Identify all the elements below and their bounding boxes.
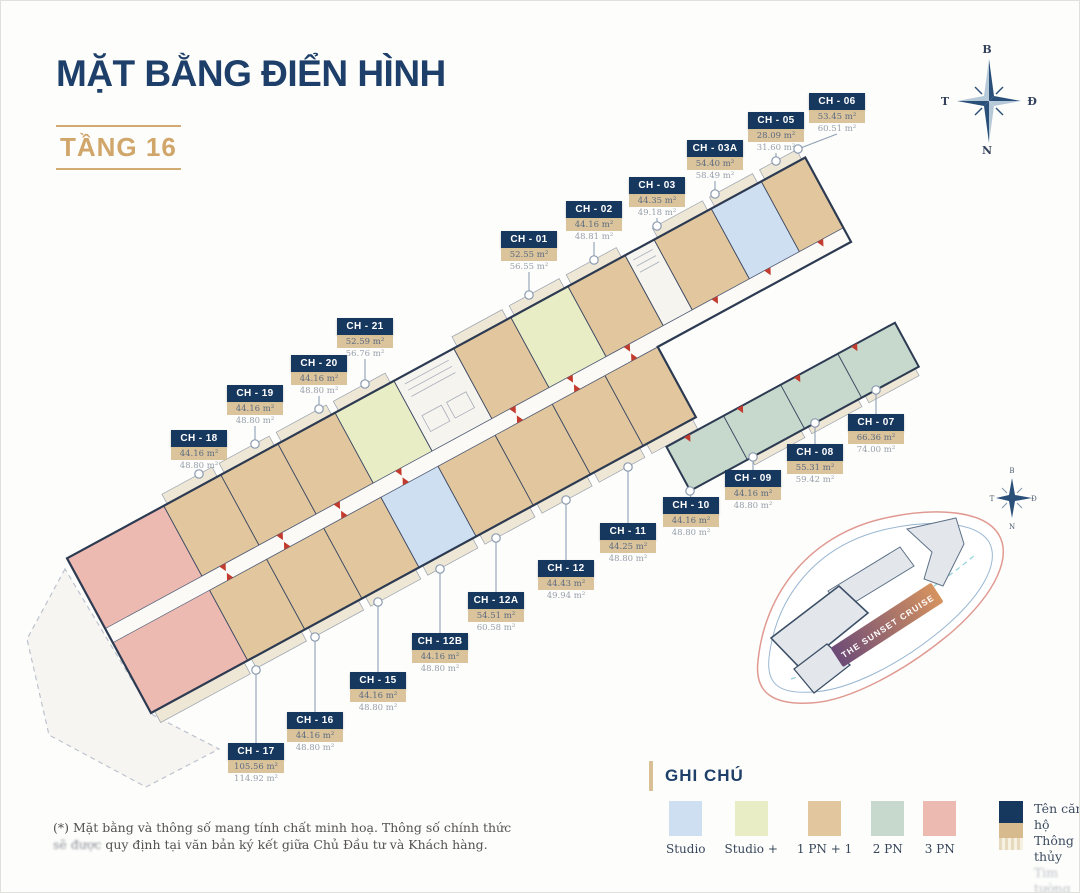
unit-area-gross: 56.76 m²	[337, 348, 393, 359]
legend-swatch-pn2	[871, 801, 904, 836]
legend-label-pn3: 3 PN	[925, 842, 955, 856]
unit-label-ch-12a: CH - 12A54.51 m²60.58 m²	[468, 592, 524, 633]
legend-swatch-studio_plus	[735, 801, 768, 836]
unit-area-net: 44.16 m²	[663, 514, 719, 527]
unit-area-net: 52.55 m²	[501, 248, 557, 261]
unit-code: CH - 12	[538, 560, 594, 577]
legend-item-pn3: 3 PN	[923, 801, 956, 856]
unit-area-net: 54.40 m²	[687, 157, 743, 170]
unit-area-gross: 48.80 m²	[725, 500, 781, 511]
unit-area-gross: 48.80 m²	[663, 527, 719, 538]
unit-code: CH - 03	[629, 177, 685, 194]
unit-label-ch-12: CH - 1244.43 m²49.94 m²	[538, 560, 594, 601]
legend-unit-name-swatch	[999, 801, 1023, 823]
unit-label-ch-06: CH - 0653.45 m²60.51 m²	[809, 93, 865, 134]
unit-code: CH - 07	[848, 414, 904, 431]
title-block: MẶT BẰNG ĐIỂN HÌNH TẦNG 16	[56, 53, 446, 170]
unit-area-net: 28.09 m²	[748, 129, 804, 142]
unit-code: CH - 17	[228, 743, 284, 760]
unit-label-ch-20: CH - 2044.16 m²48.80 m²	[291, 355, 347, 396]
unit-code: CH - 19	[227, 385, 283, 402]
unit-code: CH - 08	[787, 444, 843, 461]
unit-area-gross: 49.94 m²	[538, 590, 594, 601]
unit-code: CH - 02	[566, 201, 622, 218]
unit-label-ch-10: CH - 1044.16 m²48.80 m²	[663, 497, 719, 538]
unit-area-gross: 31.60 m²	[748, 142, 804, 153]
unit-area-gross: 48.80 m²	[227, 415, 283, 426]
unit-area-gross: 48.80 m²	[412, 663, 468, 674]
unit-label-ch-09: CH - 0944.16 m²48.80 m²	[725, 470, 781, 511]
legend-label-studio_plus: Studio +	[725, 842, 778, 856]
page-title: MẶT BẰNG ĐIỂN HÌNH	[56, 53, 446, 95]
unit-area-net: 44.16 m²	[350, 689, 406, 702]
unit-label-ch-19: CH - 1944.16 m²48.80 m²	[227, 385, 283, 426]
unit-label-ch-03: CH - 0344.35 m²49.18 m²	[629, 177, 685, 218]
unit-area-gross: 60.58 m²	[468, 622, 524, 633]
legend-label-pn2: 2 PN	[873, 842, 903, 856]
unit-area-net: 105.56 m²	[228, 760, 284, 773]
unit-area-gross: 74.00 m²	[848, 444, 904, 455]
unit-code: CH - 12B	[412, 633, 468, 650]
unit-area-net: 54.51 m²	[468, 609, 524, 622]
unit-area-gross: 48.80 m²	[600, 553, 656, 564]
unit-area-gross: 48.80 m²	[350, 702, 406, 713]
unit-area-gross: 48.80 m²	[287, 742, 343, 753]
unit-label-ch-15: CH - 1544.16 m²48.80 m²	[350, 672, 406, 713]
unit-area-gross: 48.80 m²	[171, 460, 227, 471]
unit-label-ch-05: CH - 0528.09 m²31.60 m²	[748, 112, 804, 153]
legend-label-pn1: 1 PN + 1	[797, 842, 852, 856]
legend-net-area-label: Thông thủy	[1034, 833, 1080, 865]
legend-accent-bar	[649, 761, 653, 791]
unit-code: CH - 15	[350, 672, 406, 689]
unit-code: CH - 05	[748, 112, 804, 129]
unit-label-ch-08: CH - 0855.31 m²59.42 m²	[787, 444, 843, 485]
unit-label-ch-07: CH - 0766.36 m²74.00 m²	[848, 414, 904, 455]
legend-swatch-studio	[669, 801, 702, 836]
legend-gross-area-label: Tim tường	[1034, 865, 1080, 893]
unit-area-net: 44.16 m²	[412, 650, 468, 663]
unit-area-net: 55.31 m²	[787, 461, 843, 474]
unit-label-ch-03a: CH - 03A54.40 m²58.49 m²	[687, 140, 743, 181]
disclaimer-line-1: (*) Mặt bằng và thông số mang tính chất …	[53, 819, 511, 836]
unit-area-net: 52.59 m²	[337, 335, 393, 348]
legend-net-area-swatch	[999, 823, 1023, 838]
unit-area-gross: 114.92 m²	[228, 773, 284, 784]
unit-code: CH - 06	[809, 93, 865, 110]
unit-area-net: 44.16 m²	[287, 729, 343, 742]
legend-unit-name-label: Tên căn hộ	[1034, 801, 1080, 833]
disclaimer-line-2: sẽ được quy định tại văn bản ký kết giữa…	[53, 836, 511, 853]
unit-area-net: 44.16 m²	[227, 402, 283, 415]
unit-label-ch-12b: CH - 12B44.16 m²48.80 m²	[412, 633, 468, 674]
legend-item-studio: Studio	[666, 801, 706, 856]
unit-code: CH - 03A	[687, 140, 743, 157]
unit-area-net: 66.36 m²	[848, 431, 904, 444]
unit-area-net: 53.45 m²	[809, 110, 865, 123]
legend-swatch-pn3	[923, 801, 956, 836]
unit-code: CH - 11	[600, 523, 656, 540]
unit-area-net: 44.16 m²	[566, 218, 622, 231]
legend-heading: GHI CHÚ	[665, 766, 744, 786]
unit-area-gross: 48.81 m²	[566, 231, 622, 242]
unit-area-gross: 48.80 m²	[291, 385, 347, 396]
unit-area-net: 44.16 m²	[725, 487, 781, 500]
legend-item-pn2: 2 PN	[871, 801, 904, 856]
legend-name-box: Tên căn hộ Thông thủy Tim tường	[999, 801, 1080, 893]
unit-area-gross: 56.55 m²	[501, 261, 557, 272]
unit-area-net: 44.43 m²	[538, 577, 594, 590]
legend: GHI CHÚ StudioStudio +1 PN + 12 PN3 PN T…	[649, 761, 1080, 893]
legend-swatch-pn1	[808, 801, 841, 836]
unit-label-ch-18: CH - 1844.16 m²48.80 m²	[171, 430, 227, 471]
floor-label: TẦNG 16	[56, 125, 181, 170]
unit-area-gross: 59.42 m²	[787, 474, 843, 485]
unit-code: CH - 09	[725, 470, 781, 487]
unit-area-gross: 49.18 m²	[629, 207, 685, 218]
unit-label-ch-17: CH - 17105.56 m²114.92 m²	[228, 743, 284, 784]
unit-code: CH - 12A	[468, 592, 524, 609]
unit-area-net: 44.16 m²	[171, 447, 227, 460]
legend-item-studio_plus: Studio +	[725, 801, 778, 856]
disclaimer-note: (*) Mặt bằng và thông số mang tính chất …	[53, 819, 511, 853]
unit-area-net: 44.16 m²	[291, 372, 347, 385]
unit-label-ch-02: CH - 0244.16 m²48.81 m²	[566, 201, 622, 242]
legend-gross-area-swatch	[999, 838, 1023, 850]
unit-code: CH - 10	[663, 497, 719, 514]
unit-label-ch-21: CH - 2152.59 m²56.76 m²	[337, 318, 393, 359]
unit-label-ch-11: CH - 1144.25 m²48.80 m²	[600, 523, 656, 564]
unit-code: CH - 18	[171, 430, 227, 447]
unit-area-gross: 58.49 m²	[687, 170, 743, 181]
legend-item-pn1: 1 PN + 1	[797, 801, 852, 856]
legend-label-studio: Studio	[666, 842, 706, 856]
unit-area-gross: 60.51 m²	[809, 123, 865, 134]
unit-code: CH - 01	[501, 231, 557, 248]
floor-plan-page: THE SUNSET CRUISE T Đ N B B	[0, 0, 1080, 893]
unit-label-ch-01: CH - 0152.55 m²56.55 m²	[501, 231, 557, 272]
unit-area-net: 44.25 m²	[600, 540, 656, 553]
unit-area-net: 44.35 m²	[629, 194, 685, 207]
unit-label-ch-16: CH - 1644.16 m²48.80 m²	[287, 712, 343, 753]
unit-code: CH - 21	[337, 318, 393, 335]
unit-code: CH - 16	[287, 712, 343, 729]
